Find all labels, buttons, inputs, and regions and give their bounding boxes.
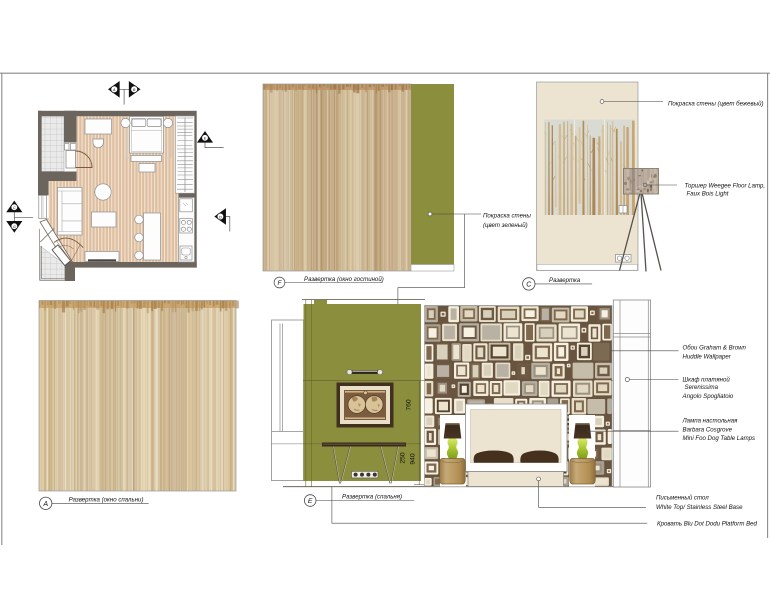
svg-text:Serenissima: Serenissima xyxy=(685,384,719,391)
svg-text:B: B xyxy=(133,88,136,92)
svg-text:E: E xyxy=(204,137,207,141)
svg-text:Кровать Blu Dot Dodu Platform: Кровать Blu Dot Dodu Platform Bed xyxy=(657,521,758,528)
svg-text:Barbara Cosgrove: Barbara Cosgrove xyxy=(683,427,733,434)
svg-text:Faux Bois Light: Faux Bois Light xyxy=(687,191,729,198)
svg-text:Торшер Weegee Floor Lamp,: Торшер Weegee Floor Lamp, xyxy=(685,183,766,190)
svg-text:A: A xyxy=(112,88,116,92)
svg-text:Mini Foo Dog Table Lamps: Mini Foo Dog Table Lamps xyxy=(683,435,756,442)
svg-text:760: 760 xyxy=(406,399,413,411)
svg-text:Обои Graham & Brown: Обои Graham & Brown xyxy=(683,344,747,351)
svg-text:D: D xyxy=(219,215,222,219)
svg-text:A: A xyxy=(42,501,48,508)
svg-text:E: E xyxy=(308,498,313,505)
svg-text:250: 250 xyxy=(400,452,407,464)
svg-text:Лампа настольная: Лампа настольная xyxy=(682,418,739,425)
svg-text:Покраска стены: Покраска стены xyxy=(483,213,531,220)
svg-text:Развертка (спальня): Развертка (спальня) xyxy=(342,494,402,501)
svg-text:Развертка (окно гостиной): Развертка (окно гостиной) xyxy=(304,276,384,283)
svg-text:Angolo Spogliatoio: Angolo Spogliatoio xyxy=(682,393,734,400)
svg-text:Развертка (окно спальни): Развертка (окно спальни) xyxy=(69,497,144,504)
svg-text:Шкаф платяной: Шкаф платяной xyxy=(683,377,731,384)
svg-text:940: 940 xyxy=(410,453,417,465)
svg-text:Развертка: Развертка xyxy=(549,277,581,284)
svg-text:Huddle Wallpaper: Huddle Wallpaper xyxy=(683,354,732,361)
svg-text:Письменный стол: Письменный стол xyxy=(656,495,709,502)
svg-text:Покраска стены (цвет бежевый): Покраска стены (цвет бежевый) xyxy=(668,100,764,107)
svg-text:White Top/ Stainless Steel Bas: White Top/ Stainless Steel Base xyxy=(656,504,743,511)
svg-text:G: G xyxy=(13,225,16,229)
svg-text:C: C xyxy=(13,206,16,210)
svg-text:(цвет зеленый): (цвет зеленый) xyxy=(483,222,528,229)
